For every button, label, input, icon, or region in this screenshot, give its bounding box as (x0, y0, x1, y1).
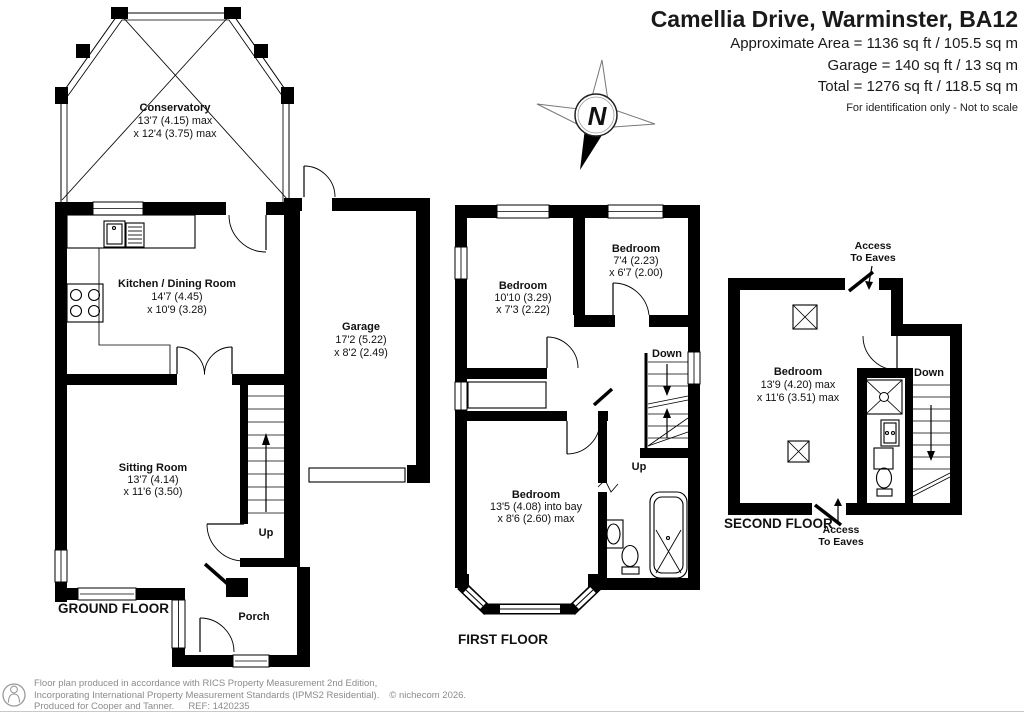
sitting-room-name: Sitting Room (119, 462, 188, 474)
conservatory-name: Conservatory (140, 102, 212, 114)
down-arrow-icon (663, 386, 671, 396)
sink-icon (874, 420, 899, 469)
hob-icon (67, 284, 103, 322)
up-arrow-icon (663, 408, 671, 418)
ground-floor-label: GROUND FLOOR (58, 601, 169, 616)
ground-floor-plan: Conservatory 13'7 (4.15) max x 12'4 (3.7… (55, 7, 430, 667)
down-arrow-icon (927, 451, 935, 461)
bath-icon (650, 492, 687, 578)
sitting-room-dim2: x 11'6 (3.50) (124, 486, 183, 498)
bedroom1-dim1: 10'10 (3.29) (494, 292, 551, 304)
bedroom2-dim2: x 6'7 (2.00) (609, 267, 663, 279)
bedroom2-name: Bedroom (612, 243, 661, 255)
north-label: N (588, 101, 608, 131)
bay-window (461, 585, 598, 611)
skylight-icon (788, 441, 809, 462)
first-floor-walls (455, 205, 700, 590)
bedroom1-dim2: x 7'3 (2.22) (496, 304, 550, 316)
kitchen-walls (55, 202, 299, 602)
first-floor-plan: Bedroom 10'10 (3.29) x 7'3 (2.22) Bedroo… (455, 205, 700, 647)
garage-walls (284, 166, 430, 567)
conservatory-dim2: x 12'4 (3.75) max (133, 128, 217, 140)
kitchen-sink-icon (104, 221, 144, 247)
toilet-icon (877, 468, 893, 496)
bedroom-dim2: x 11'6 (3.51) max (757, 392, 840, 404)
access-eaves-bottom-line2: To Eaves (818, 536, 863, 548)
second-floor-label: SECOND FLOOR (724, 516, 833, 531)
footer-line1: Floor plan produced in accordance with R… (34, 678, 466, 690)
footer-line2: Incorporating International Property Mea… (34, 690, 379, 701)
stairs-down-label: Down (652, 348, 682, 360)
garage-name: Garage (342, 321, 380, 333)
garage-dim2: x 8'2 (2.49) (334, 347, 388, 359)
toilet-icon (622, 546, 639, 575)
footer: Floor plan produced in accordance with R… (34, 678, 466, 713)
kitchen-name: Kitchen / Dining Room (118, 278, 236, 290)
bedroom1-name: Bedroom (499, 280, 548, 292)
bottom-divider (0, 711, 1024, 712)
compass-icon: N (537, 60, 655, 170)
landing-door (594, 389, 612, 405)
first-floor-label: FIRST FLOOR (458, 632, 548, 647)
garage-dim1: 17'2 (5.22) (335, 334, 386, 346)
stairs-up-label: Up (632, 461, 647, 473)
sitting-room-dim1: 13'7 (4.14) (127, 474, 178, 486)
stairs-up-label: Up (259, 527, 274, 539)
bedroom-dim1: 13'9 (4.20) max (761, 379, 836, 391)
skylight-icon (793, 305, 817, 329)
stairs-down-label: Down (914, 367, 944, 379)
up-arrow-icon (834, 498, 842, 506)
shower-icon (866, 380, 902, 414)
bedroom3-dim1: 13'5 (4.08) into bay (490, 501, 583, 513)
person-icon (3, 684, 25, 706)
cupboard (468, 382, 546, 408)
sitting-room-walls (55, 588, 172, 600)
access-eaves-top-line2: To Eaves (850, 252, 895, 264)
bedroom2-dim1: 7'4 (2.23) (613, 255, 658, 267)
garage-door (309, 468, 405, 482)
bedroom3-dim2: x 8'6 (2.60) max (497, 513, 575, 525)
conservatory-dim1: 13'7 (4.15) max (138, 115, 213, 127)
bedroom3-name: Bedroom (512, 489, 561, 501)
footer-copyright: © nichecom 2026. (389, 690, 466, 701)
stairs-second (913, 385, 950, 496)
floorplan-drawing: Conservatory 13'7 (4.15) max x 12'4 (3.7… (0, 0, 1024, 715)
bedroom-name: Bedroom (774, 366, 823, 378)
porch-name: Porch (238, 611, 269, 623)
kitchen-dim2: x 10'9 (3.28) (147, 304, 207, 316)
kitchen-sitting-divider (55, 347, 299, 385)
second-floor-plan: Bedroom 13'9 (4.20) max x 11'6 (3.51) ma… (724, 240, 962, 548)
front-door (200, 618, 234, 652)
floorplan-page: Camellia Drive, Warminster, BA12 Approxi… (0, 0, 1024, 715)
kitchen-dim1: 14'7 (4.45) (151, 291, 202, 303)
access-eaves-top-line1: Access (855, 240, 892, 252)
